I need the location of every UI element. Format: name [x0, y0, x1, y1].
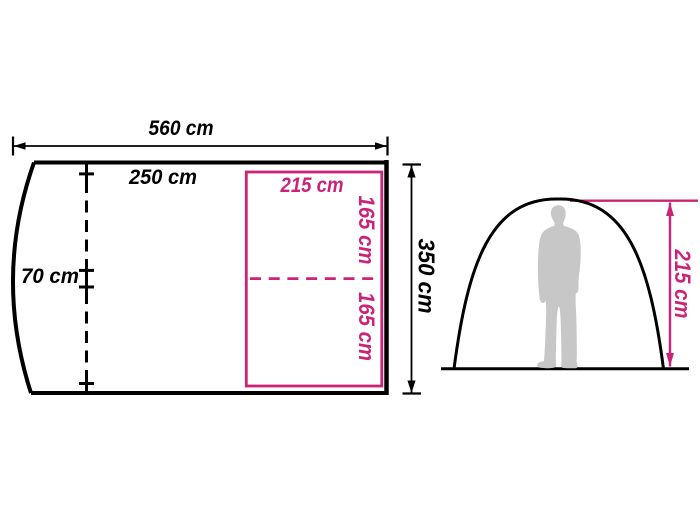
svg-text:215 cm: 215 cm — [670, 249, 695, 319]
svg-text:560 cm: 560 cm — [149, 116, 214, 140]
svg-text:250 cm: 250 cm — [128, 165, 197, 189]
svg-text:165 cm: 165 cm — [354, 196, 379, 265]
svg-text:70 cm: 70 cm — [21, 264, 79, 288]
svg-text:165 cm: 165 cm — [354, 292, 379, 361]
svg-text:215 cm: 215 cm — [280, 173, 344, 197]
svg-text:350 cm: 350 cm — [413, 239, 439, 314]
